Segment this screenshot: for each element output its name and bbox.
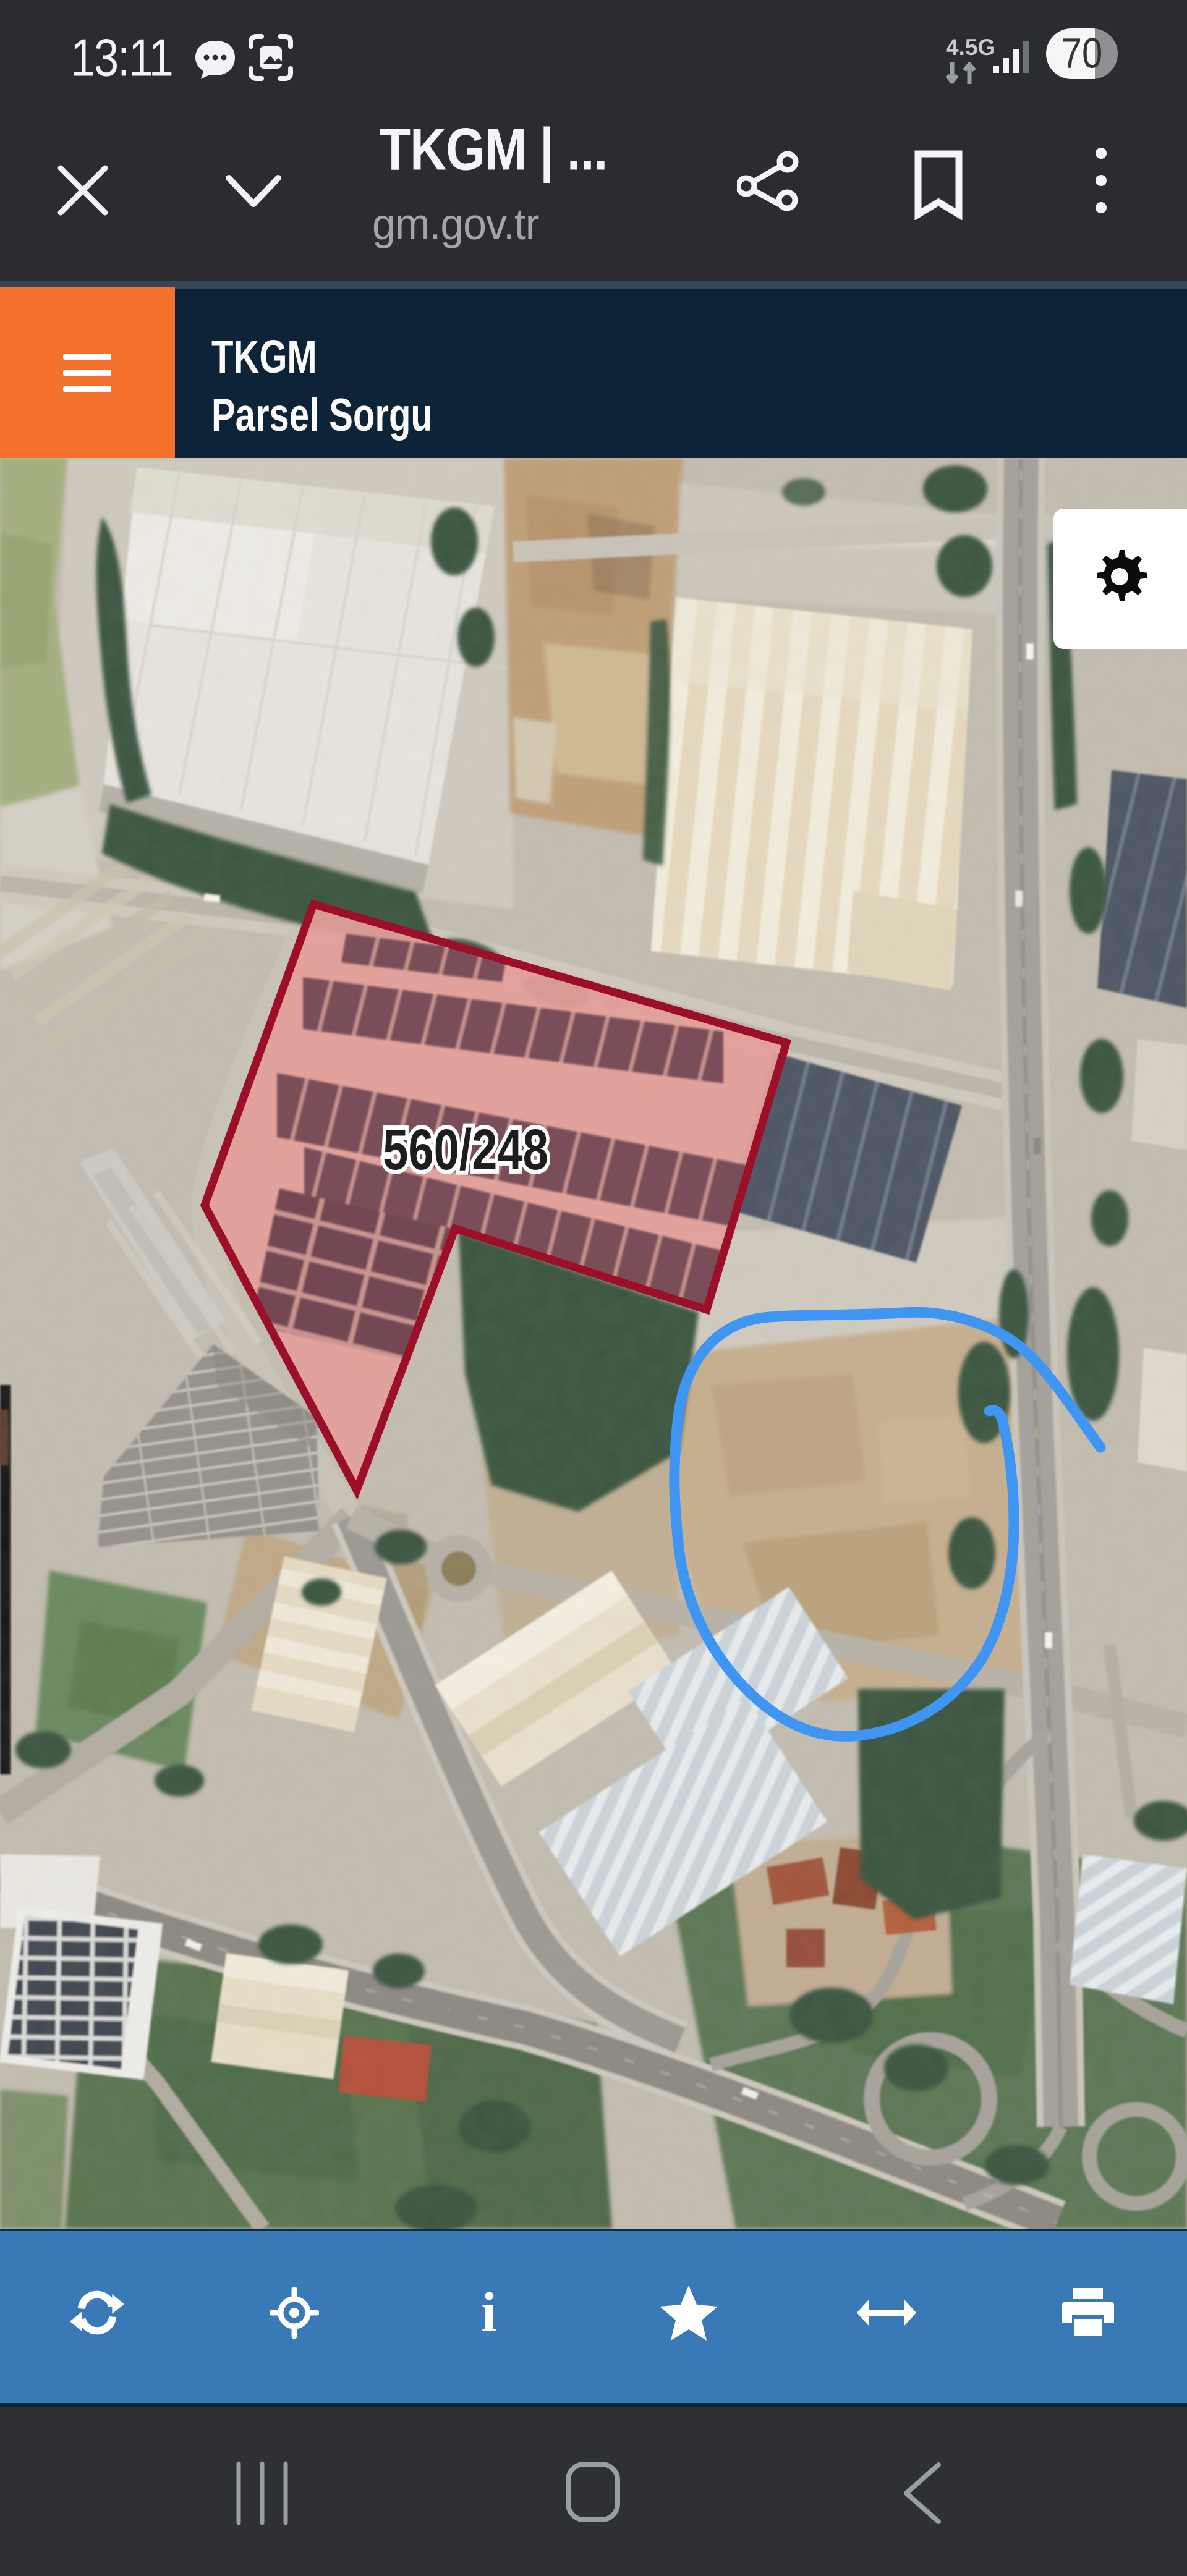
svg-text:560/248: 560/248: [383, 1117, 548, 1182]
